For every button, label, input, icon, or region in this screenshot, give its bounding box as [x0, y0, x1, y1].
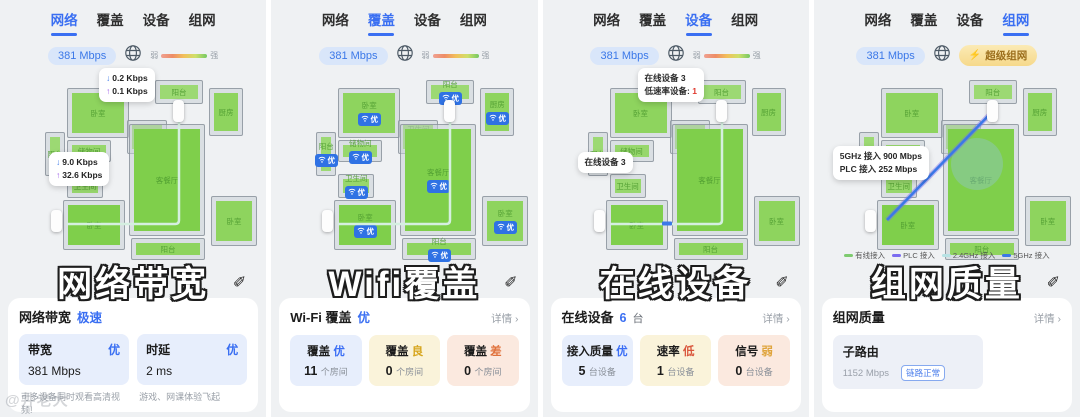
- room-厨房: 厨房: [209, 88, 243, 136]
- coverage-badge: 优: [494, 221, 518, 234]
- coverage-grade: 优: [367, 226, 375, 237]
- status-row: 381 Mbps弱强: [271, 44, 537, 67]
- stat-unit: 个房间: [396, 367, 423, 377]
- stat-value: 0: [464, 364, 474, 378]
- stat-label: 速率: [657, 346, 683, 358]
- room-floor: 厨房: [757, 93, 781, 131]
- metric-grade: 优: [226, 341, 238, 358]
- room-floor: 卫生间: [886, 179, 912, 193]
- wifi-icon: [318, 156, 326, 165]
- stat-unit: 台设备: [667, 367, 694, 377]
- coverage-badge: 优: [358, 113, 382, 126]
- stat-unit: 台设备: [746, 367, 773, 377]
- stat-box-优: 覆盖 优11 个房间: [290, 335, 361, 386]
- stat-value-line: 5 台设备: [565, 364, 630, 378]
- room-floor: 阳台优: [431, 85, 469, 99]
- room-label: 阳台: [319, 141, 334, 152]
- stat-label-line: 覆盖 差: [450, 343, 515, 359]
- room-label: 储物间: [349, 138, 372, 149]
- tooltip-text: 低速率设备:: [645, 86, 693, 96]
- signal-gradient-bar: [433, 54, 479, 58]
- room-label: 阳台: [443, 79, 458, 90]
- coverage-grade: 优: [328, 155, 336, 166]
- room-label: 阳台: [172, 87, 187, 98]
- tooltip-line: ↑0.1 Kbps: [106, 85, 148, 98]
- signal-gradient-bar: [704, 54, 750, 58]
- router-sub: [594, 210, 605, 232]
- tooltip-value: 3: [621, 157, 626, 167]
- super-mesh-badge: ⚡超级组网: [959, 45, 1037, 66]
- room-floor: 客餐厅优: [405, 129, 471, 231]
- tab-network[interactable]: 网络: [593, 9, 620, 36]
- card-title: 网络带宽: [19, 307, 71, 326]
- stat-label: 覆盖: [464, 346, 490, 358]
- coverage-badge: 优: [427, 180, 451, 193]
- wifi-icon: [489, 114, 497, 123]
- tab-mesh[interactable]: 组网: [731, 9, 758, 36]
- signal-strength-scale: 弱强: [693, 50, 761, 61]
- wifi-icon: [361, 115, 369, 124]
- stat-unit: 台设备: [589, 367, 616, 377]
- coverage-grade: 优: [507, 222, 515, 233]
- room-label: 卧室: [91, 108, 106, 119]
- tooltip-value: 32.6 Kbps: [62, 170, 102, 180]
- edit-pencil-icon[interactable]: ✎: [233, 270, 246, 290]
- room-floor: 卧室: [68, 205, 120, 245]
- status-row: 381 Mbps弱强: [543, 44, 809, 67]
- edit-pencil-icon[interactable]: ✎: [1047, 270, 1060, 290]
- router-app-panels: 网络覆盖设备组网381 Mbps弱强卧室阳台储物间卫生间阳台厨房客餐厅卫生间卧室…: [0, 0, 1080, 417]
- panel-mesh: 网络覆盖设备组网381 Mbps⚡超级组网卧室阳台储物间卫生间阳台厨房客餐厅卫生…: [814, 0, 1080, 417]
- panel-devices: 网络覆盖设备组网381 Mbps弱强卧室阳台储物间卫生间阳台厨房客餐厅卫生间卧室…: [543, 0, 809, 417]
- router-main: [444, 100, 455, 122]
- tooltip-text: 在线设备: [585, 157, 621, 167]
- stat-label: 覆盖: [307, 346, 333, 358]
- tab-network[interactable]: 网络: [51, 9, 78, 36]
- floor-plan: 卧室阳台储物间卫生间阳台厨房客餐厅卫生间卧室阳台卧室在线设备 3低速率设备: 1…: [558, 74, 794, 272]
- tab-bar: 网络覆盖设备组网: [271, 9, 537, 36]
- tooltip-line: 在线设备 3: [645, 72, 697, 85]
- overlay-title: Wifi覆盖: [271, 256, 537, 307]
- room-floor: 阳台: [703, 85, 741, 99]
- floor-plan: 卧室阳台储物间卫生间阳台厨房客餐厅卫生间卧室阳台卧室5GHz 接入 900 Mb…: [829, 74, 1065, 272]
- room-label: 卧室: [498, 208, 513, 219]
- room-卧室: 卧室: [211, 196, 257, 246]
- tooltip-text: 5GHz 接入: [840, 151, 883, 161]
- room-floor: 客餐厅: [677, 129, 743, 231]
- overlay-title: 在线设备: [543, 256, 809, 307]
- room-厨房: 厨房优: [480, 88, 514, 136]
- room-label: 卧室: [629, 220, 644, 231]
- stat-value: 5: [578, 364, 588, 378]
- room-label: 阳台: [985, 87, 1000, 98]
- globe-icon: [667, 44, 685, 67]
- wifi-icon: [430, 182, 438, 191]
- stat-box-弱: 信号 弱0 台设备: [718, 335, 789, 386]
- detail-link[interactable]: 详情 ›: [1034, 311, 1061, 326]
- room-阳台: 阳台优: [316, 132, 336, 176]
- room-储物间: 储物间优: [338, 140, 382, 162]
- tab-devices[interactable]: 设备: [956, 9, 983, 36]
- room-floor: 阳台优: [407, 243, 471, 255]
- stat-value-line: 0 个房间: [450, 364, 515, 378]
- room-floor: 卫生间优: [343, 179, 369, 193]
- signal-strength-scale: 弱强: [422, 50, 490, 61]
- metric-head: 时延优: [146, 341, 238, 358]
- tab-devices[interactable]: 设备: [414, 9, 441, 36]
- speed-pill: 381 Mbps: [319, 47, 387, 65]
- stat-label-line: 速率 低: [643, 343, 708, 359]
- stat-grade: 低: [683, 346, 695, 358]
- signal-gradient-bar: [161, 54, 207, 58]
- room-label: 客餐厅: [698, 175, 721, 186]
- down-arrow-icon: ↓: [56, 157, 60, 167]
- room-卧室: 卧室优: [482, 196, 528, 246]
- wifi-icon: [357, 227, 365, 236]
- tab-mesh[interactable]: 组网: [1002, 9, 1029, 36]
- tab-coverage[interactable]: 覆盖: [639, 9, 666, 36]
- tooltip-line: 在线设备 3: [585, 156, 626, 169]
- card-header: 在线设备6台详情 ›: [562, 307, 790, 326]
- stat-label-line: 接入质量 优: [565, 343, 630, 359]
- room-floor: 卧室: [886, 93, 938, 133]
- coverage-badge: 优: [354, 225, 378, 238]
- stat-value: 0: [386, 364, 396, 378]
- speed-tooltip: ↓9.0 Kbps↑32.6 Kbps: [49, 152, 109, 186]
- room-卫生间: 卫生间: [610, 174, 646, 198]
- card-title: Wi-Fi 覆盖: [290, 307, 351, 326]
- room-厨房: 厨房: [752, 88, 786, 136]
- room-客餐厅: 客餐厅: [943, 124, 1019, 236]
- metric-value: 2 ms: [146, 364, 238, 378]
- tab-network[interactable]: 网络: [864, 9, 891, 36]
- tooltip-line: 低速率设备: 1: [645, 85, 697, 98]
- stat-label-line: 覆盖 良: [372, 343, 437, 359]
- room-卧室: 卧室: [63, 200, 125, 250]
- router-main: [716, 100, 727, 122]
- lightning-icon: ⚡: [969, 50, 981, 61]
- edit-pencil-icon[interactable]: ✎: [775, 270, 788, 290]
- status-row: 381 Mbps⚡超级组网: [814, 44, 1080, 67]
- room-卧室: 卧室: [606, 200, 668, 250]
- speed-tooltip: 在线设备 3: [578, 152, 633, 173]
- room-label: 卧室: [87, 220, 102, 231]
- summary-card: 组网质量详情 ›子路由1152 Mbps链路正常: [822, 298, 1072, 412]
- coverage-grade: 优: [371, 114, 379, 125]
- card-grade: 优: [358, 307, 371, 326]
- room-客餐厅: 客餐厅优: [400, 124, 476, 236]
- room-厨房: 厨房: [1023, 88, 1057, 136]
- speed-pill: 381 Mbps: [856, 47, 924, 65]
- tab-network[interactable]: 网络: [322, 9, 349, 36]
- room-floor: 卧室: [611, 205, 663, 245]
- stat-box-良: 覆盖 良0 个房间: [369, 335, 440, 386]
- room-floor: 卧室: [216, 201, 252, 241]
- stat-grade: 弱: [761, 346, 773, 358]
- stat-grade: 差: [490, 346, 502, 358]
- room-floor: 卧室: [882, 205, 934, 245]
- coverage-grade: 优: [362, 152, 370, 163]
- room-label: 客餐厅: [427, 167, 450, 178]
- room-floor: 客餐厅: [948, 129, 1014, 231]
- tooltip-value: 9.0 Kbps: [62, 157, 97, 167]
- tooltip-value: 3: [681, 73, 686, 83]
- down-arrow-icon: ↓: [106, 73, 110, 83]
- room-卧室: 卧室优: [334, 200, 396, 250]
- room-label: 卧室: [900, 220, 915, 231]
- stat-row: 覆盖 优11 个房间覆盖 良0 个房间覆盖 差0 个房间: [290, 335, 518, 386]
- coverage-grade: 优: [358, 187, 366, 198]
- overlay-title: 组网质量: [814, 256, 1080, 307]
- room-floor: 卧室优: [339, 205, 391, 245]
- metric-label: 时延: [146, 341, 170, 358]
- stat-box-差: 覆盖 差0 个房间: [447, 335, 518, 386]
- card-header: 网络带宽极速: [19, 307, 247, 326]
- stat-grade: 良: [412, 346, 424, 358]
- strong-label: 强: [753, 50, 761, 61]
- link-status-badge: 链路正常: [901, 365, 945, 381]
- room-label: 卧室: [362, 100, 377, 111]
- sub-router-name: 子路由: [843, 343, 973, 360]
- room-label: 厨房: [1032, 107, 1047, 118]
- stat-label-line: 覆盖 优: [293, 343, 358, 359]
- metric-row: 带宽优381 Mbps时延优2 ms: [19, 334, 247, 385]
- room-floor: 阳台: [974, 85, 1012, 99]
- stat-label: 信号: [735, 346, 761, 358]
- room-floor: 阳台: [679, 243, 743, 255]
- tooltip-line: ↓9.0 Kbps: [56, 156, 102, 169]
- status-row: 381 Mbps弱强: [0, 44, 266, 67]
- tooltip-text: 在线设备: [645, 73, 681, 83]
- room-label: 客餐厅: [156, 175, 179, 186]
- tab-devices[interactable]: 设备: [685, 9, 712, 36]
- room-label: 阳台: [432, 236, 447, 247]
- room-floor: 阳台: [160, 85, 198, 99]
- room-floor: 卧室: [1030, 201, 1066, 241]
- stat-value: 11: [304, 364, 321, 378]
- speed-tooltip: 在线设备 3低速率设备: 1: [638, 68, 704, 102]
- speed-tooltip: 5GHz 接入 900 MbpsPLC 接入 252 Mbps: [833, 146, 929, 180]
- globe-icon: [396, 44, 414, 67]
- room-label: 卧室: [633, 108, 648, 119]
- strong-label: 强: [210, 50, 218, 61]
- coverage-grade: 优: [499, 113, 507, 124]
- stat-value: 1: [657, 364, 667, 378]
- up-arrow-icon: ↑: [56, 170, 60, 180]
- room-label: 卫生间: [888, 181, 911, 192]
- weak-label: 弱: [150, 50, 158, 61]
- tab-bar: 网络覆盖设备组网: [543, 9, 809, 36]
- room-label: 卧室: [1040, 216, 1055, 227]
- wifi-icon: [348, 188, 356, 197]
- tooltip-value: 252 Mbps: [878, 164, 917, 174]
- tooltip-line: ↑32.6 Kbps: [56, 169, 102, 182]
- room-label: 卧室: [904, 108, 919, 119]
- globe-icon: [124, 44, 142, 67]
- stat-row: 接入质量 优5 台设备速率 低1 台设备信号 弱0 台设备: [562, 335, 790, 386]
- card-title: 组网质量: [833, 307, 885, 326]
- room-label: 卧室: [358, 212, 373, 223]
- metric-grade: 优: [108, 341, 120, 358]
- stat-value-line: 1 台设备: [643, 364, 708, 378]
- card-grade: 极速: [77, 307, 102, 326]
- router-main: [987, 100, 998, 122]
- tab-mesh[interactable]: 组网: [460, 9, 487, 36]
- coverage-grade: 优: [440, 181, 448, 192]
- signal-strength-scale: 弱强: [150, 50, 218, 61]
- card-header: 组网质量详情 ›: [833, 307, 1061, 326]
- metric-label: 带宽: [28, 341, 52, 358]
- tooltip-text: PLC 接入: [840, 164, 879, 174]
- room-label: 厨房: [490, 99, 505, 110]
- room-label: 卫生间: [616, 181, 639, 192]
- sub-router-row: 1152 Mbps链路正常: [843, 365, 973, 381]
- coverage-badge: 优: [315, 154, 339, 167]
- tab-bar: 网络覆盖设备组网: [0, 9, 266, 36]
- card-title: 在线设备: [562, 307, 614, 326]
- wifi-icon: [497, 223, 505, 232]
- room-客餐厅: 客餐厅: [672, 124, 748, 236]
- stat-value: 0: [735, 364, 745, 378]
- room-label: 卫生间: [345, 173, 368, 184]
- tooltip-value: 900 Mbps: [883, 151, 922, 161]
- stat-grade: 优: [616, 346, 628, 358]
- stat-unit: 个房间: [321, 367, 348, 377]
- room-floor: 厨房: [1028, 93, 1052, 131]
- metric-caption: 游戏、网课体验飞起: [137, 391, 247, 416]
- speed-pill: 381 Mbps: [48, 47, 116, 65]
- tooltip-value: 0.2 Kbps: [112, 73, 147, 83]
- metric-box-时延: 时延优2 ms: [137, 334, 247, 385]
- card-grade: 6: [620, 311, 627, 325]
- room-label: 卧室: [769, 216, 784, 227]
- speed-pill: 381 Mbps: [590, 47, 658, 65]
- watermark: @井老大: [5, 389, 69, 410]
- tooltip-value: 0.1 Kbps: [112, 86, 147, 96]
- overlay-title: 网络带宽: [0, 256, 266, 307]
- room-卧室: 卧室优: [338, 88, 400, 138]
- room-卧室: 卧室: [877, 200, 939, 250]
- room-卧室: 卧室: [1025, 196, 1071, 246]
- super-mesh-label: 超级组网: [985, 48, 1027, 63]
- up-arrow-icon: ↑: [106, 86, 110, 96]
- room-label: 阳台: [714, 87, 729, 98]
- detail-link[interactable]: 详情 ›: [491, 311, 518, 326]
- room-floor: 卧室优: [487, 201, 523, 241]
- coverage-badge: 优: [349, 151, 373, 164]
- room-label: 阳台: [703, 244, 718, 255]
- stat-label: 接入质量: [567, 346, 616, 358]
- panel-coverage: 网络覆盖设备组网381 Mbps弱强卧室优阳台优储物间优卫生间优阳台优厨房优客餐…: [271, 0, 537, 417]
- strong-label: 强: [482, 50, 490, 61]
- room-label: 客餐厅: [970, 175, 993, 186]
- room-floor: 卧室优: [343, 93, 395, 133]
- tooltip-value: 1: [692, 86, 697, 96]
- room-floor: 厨房: [214, 93, 238, 131]
- room-floor: 厨房优: [485, 93, 509, 131]
- room-floor: 阳台优: [321, 137, 331, 171]
- coverage-badge: 优: [345, 186, 369, 199]
- wifi-icon: [352, 153, 360, 162]
- stat-box-优: 接入质量 优5 台设备: [562, 335, 633, 386]
- coverage-badge: 优: [486, 112, 510, 125]
- weak-label: 弱: [693, 50, 701, 61]
- sub-router-speed: 1152 Mbps: [843, 368, 889, 379]
- tooltip-line: 5GHz 接入 900 Mbps: [840, 150, 922, 163]
- tab-coverage[interactable]: 覆盖: [97, 9, 124, 36]
- router-sub: [51, 210, 62, 232]
- floor-plan: 卧室阳台储物间卫生间阳台厨房客餐厅卫生间卧室阳台卧室↓0.2 Kbps↑0.1 …: [15, 74, 251, 272]
- speed-tooltip: ↓0.2 Kbps↑0.1 Kbps: [99, 68, 155, 102]
- edit-pencil-icon[interactable]: ✎: [504, 270, 517, 290]
- panel-network: 网络覆盖设备组网381 Mbps弱强卧室阳台储物间卫生间阳台厨房客餐厅卫生间卧室…: [0, 0, 266, 417]
- stat-label: 覆盖: [386, 346, 412, 358]
- tooltip-line: ↓0.2 Kbps: [106, 72, 148, 85]
- router-main: [173, 100, 184, 122]
- room-floor: 储物间优: [343, 145, 377, 157]
- stat-unit: 个房间: [475, 367, 502, 377]
- stat-box-低: 速率 低1 台设备: [640, 335, 711, 386]
- router-sub: [865, 210, 876, 232]
- stat-value-line: 11 个房间: [293, 364, 358, 378]
- summary-card: Wi-Fi 覆盖优详情 ›覆盖 优11 个房间覆盖 良0 个房间覆盖 差0 个房…: [279, 298, 529, 412]
- room-floor: 卫生间: [615, 179, 641, 193]
- globe-icon: [933, 44, 951, 67]
- tab-coverage[interactable]: 覆盖: [368, 9, 395, 36]
- room-floor: 卧室: [759, 201, 795, 241]
- room-floor: 客餐厅: [134, 129, 200, 231]
- room-label: 厨房: [761, 107, 776, 118]
- detail-link[interactable]: 详情 ›: [762, 311, 789, 326]
- stat-grade: 优: [333, 346, 345, 358]
- router-sub: [322, 210, 333, 232]
- stat-value-line: 0 个房间: [372, 364, 437, 378]
- sub-router-box: 子路由1152 Mbps链路正常: [833, 335, 983, 389]
- summary-card: 在线设备6台详情 ›接入质量 优5 台设备速率 低1 台设备信号 弱0 台设备: [551, 298, 801, 412]
- tab-coverage[interactable]: 覆盖: [910, 9, 937, 36]
- floor-plan: 卧室优阳台优储物间优卫生间优阳台优厨房优客餐厅优卫生间优卧室优阳台优卧室优: [286, 74, 522, 272]
- metric-head: 带宽优: [28, 341, 120, 358]
- card-grade-suffix: 台: [632, 310, 643, 326]
- card-header: Wi-Fi 覆盖优详情 ›: [290, 307, 518, 326]
- stat-label-line: 信号 弱: [721, 343, 786, 359]
- room-floor: 阳台: [136, 243, 200, 255]
- stat-value-line: 0 台设备: [721, 364, 786, 378]
- tooltip-line: PLC 接入 252 Mbps: [840, 163, 922, 176]
- room-客餐厅: 客餐厅: [129, 124, 205, 236]
- room-label: 厨房: [219, 107, 234, 118]
- room-卧室: 卧室: [881, 88, 943, 138]
- tab-bar: 网络覆盖设备组网: [814, 9, 1080, 36]
- room-卫生间: 卫生间优: [338, 174, 374, 198]
- room-label: 卧室: [227, 216, 242, 227]
- weak-label: 弱: [422, 50, 430, 61]
- room-卧室: 卧室: [754, 196, 800, 246]
- metric-value: 381 Mbps: [28, 364, 120, 378]
- tab-devices[interactable]: 设备: [143, 9, 170, 36]
- room-label: 阳台: [161, 244, 176, 255]
- tab-mesh[interactable]: 组网: [189, 9, 216, 36]
- metric-box-带宽: 带宽优381 Mbps: [19, 334, 129, 385]
